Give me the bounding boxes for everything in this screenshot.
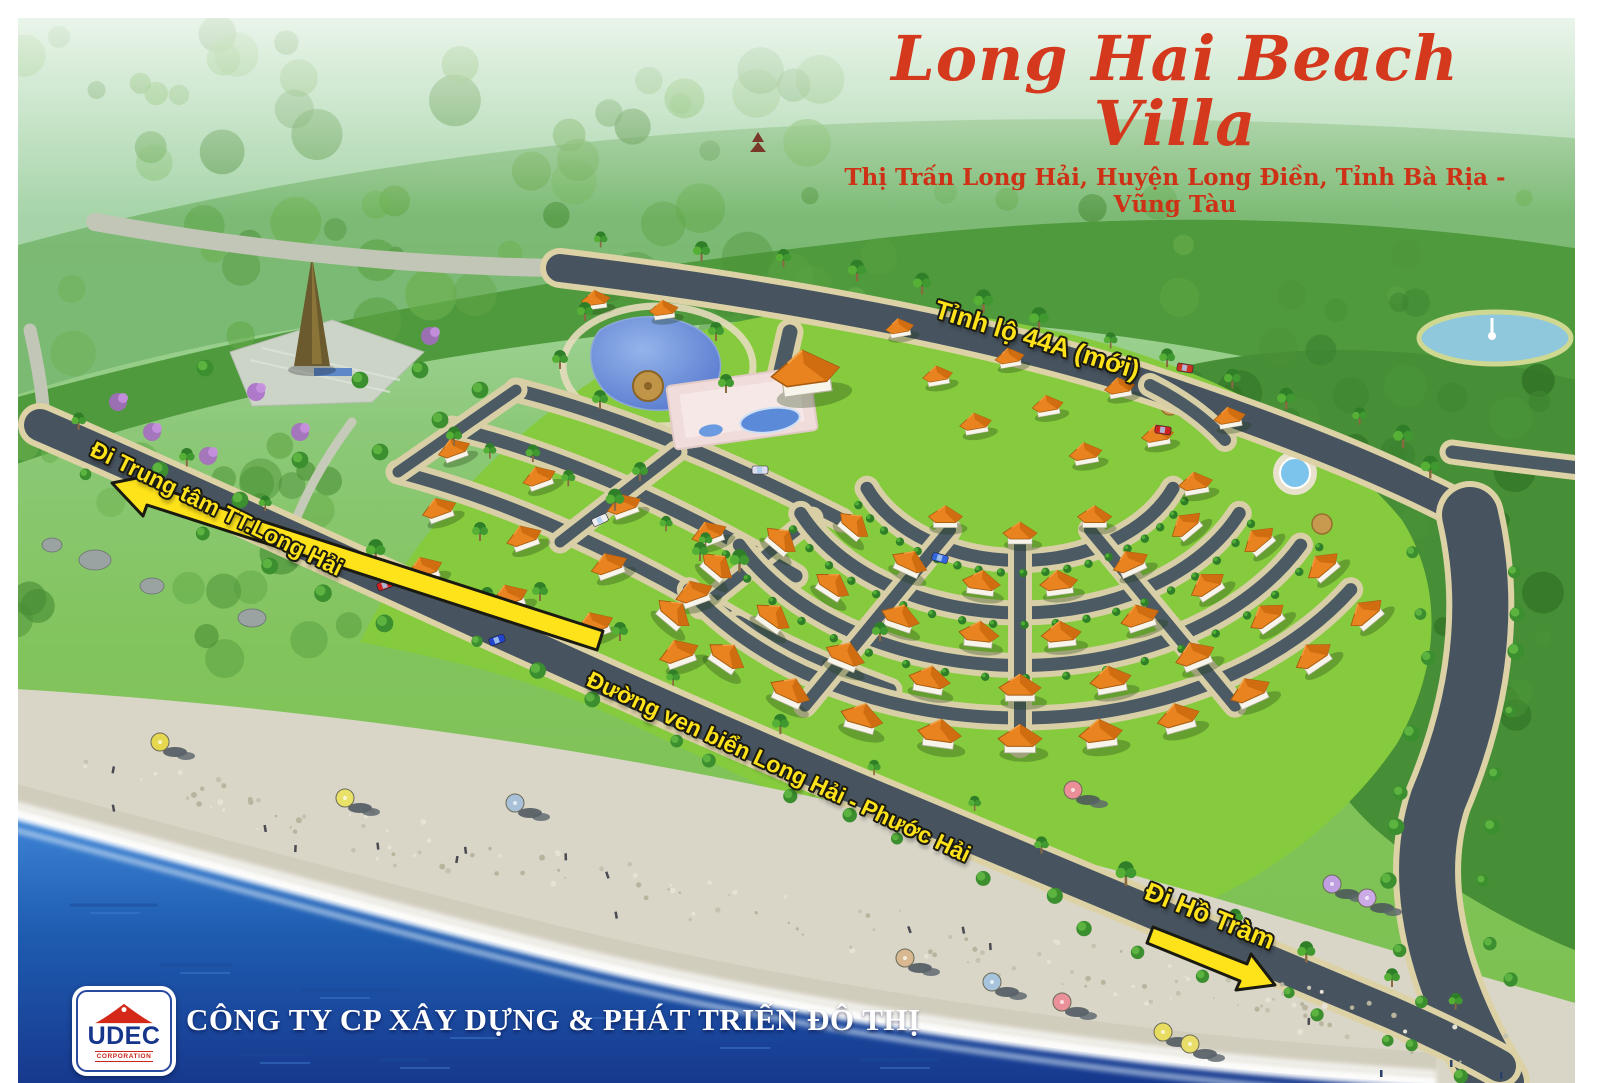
developer-logo-text: UDEC bbox=[88, 1024, 161, 1049]
developer-logo-subtext: CORPORATION bbox=[95, 1051, 154, 1062]
developer-logo: UDEC CORPORATION bbox=[72, 986, 176, 1076]
developer-company-name: CÔNG TY CP XÂY DỰNG & PHÁT TRIỂN ĐÔ THỊ bbox=[186, 1002, 921, 1038]
poster-frame-left bbox=[0, 0, 18, 1083]
developer-banner: UDEC CORPORATION CÔNG TY CP XÂY DỰNG & P… bbox=[0, 980, 1600, 1083]
poster-frame-top bbox=[0, 0, 1600, 18]
round-pool bbox=[1280, 458, 1310, 488]
project-location-subtitle: Thị Trấn Long Hải, Huyện Long Điền, Tỉnh… bbox=[830, 164, 1520, 218]
title-block: Long Hai Beach Villa Thị Trấn Long Hải, … bbox=[830, 26, 1520, 218]
masterplan-poster: Long Hai Beach Villa Thị Trấn Long Hải, … bbox=[0, 0, 1600, 1083]
project-title: Long Hai Beach Villa bbox=[830, 26, 1520, 156]
poster-frame-right bbox=[1575, 0, 1600, 1083]
